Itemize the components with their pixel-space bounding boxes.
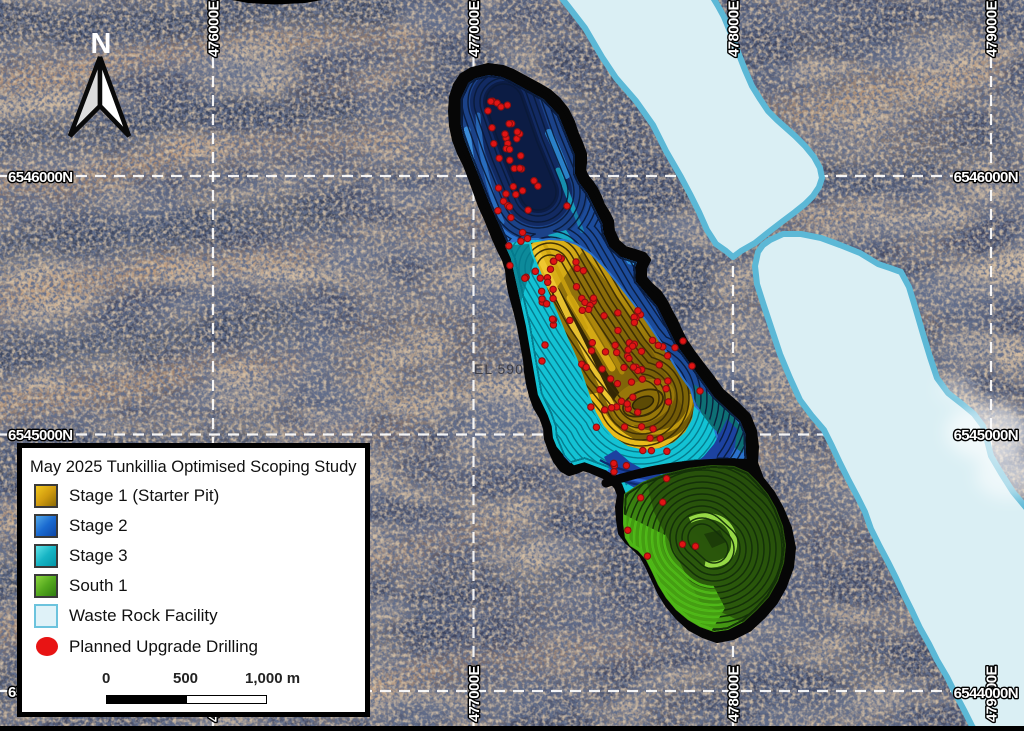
svg-text:478000E: 478000E [726, 1, 743, 57]
svg-text:6546000N: 6546000N [954, 169, 1018, 186]
svg-text:476000E: 476000E [206, 1, 223, 57]
svg-text:477000E: 477000E [466, 666, 483, 722]
svg-text:6544000N: 6544000N [954, 685, 1018, 702]
svg-text:6545000N: 6545000N [8, 427, 72, 444]
svg-text:6545000N: 6545000N [954, 427, 1018, 444]
svg-text:EL 590: EL 590 [474, 361, 524, 377]
svg-text:N: N [91, 28, 112, 60]
svg-text:479000E: 479000E [984, 1, 1001, 57]
svg-text:6546000N: 6546000N [8, 169, 72, 186]
svg-text:477000E: 477000E [466, 1, 483, 57]
svg-text:478000E: 478000E [726, 666, 743, 722]
